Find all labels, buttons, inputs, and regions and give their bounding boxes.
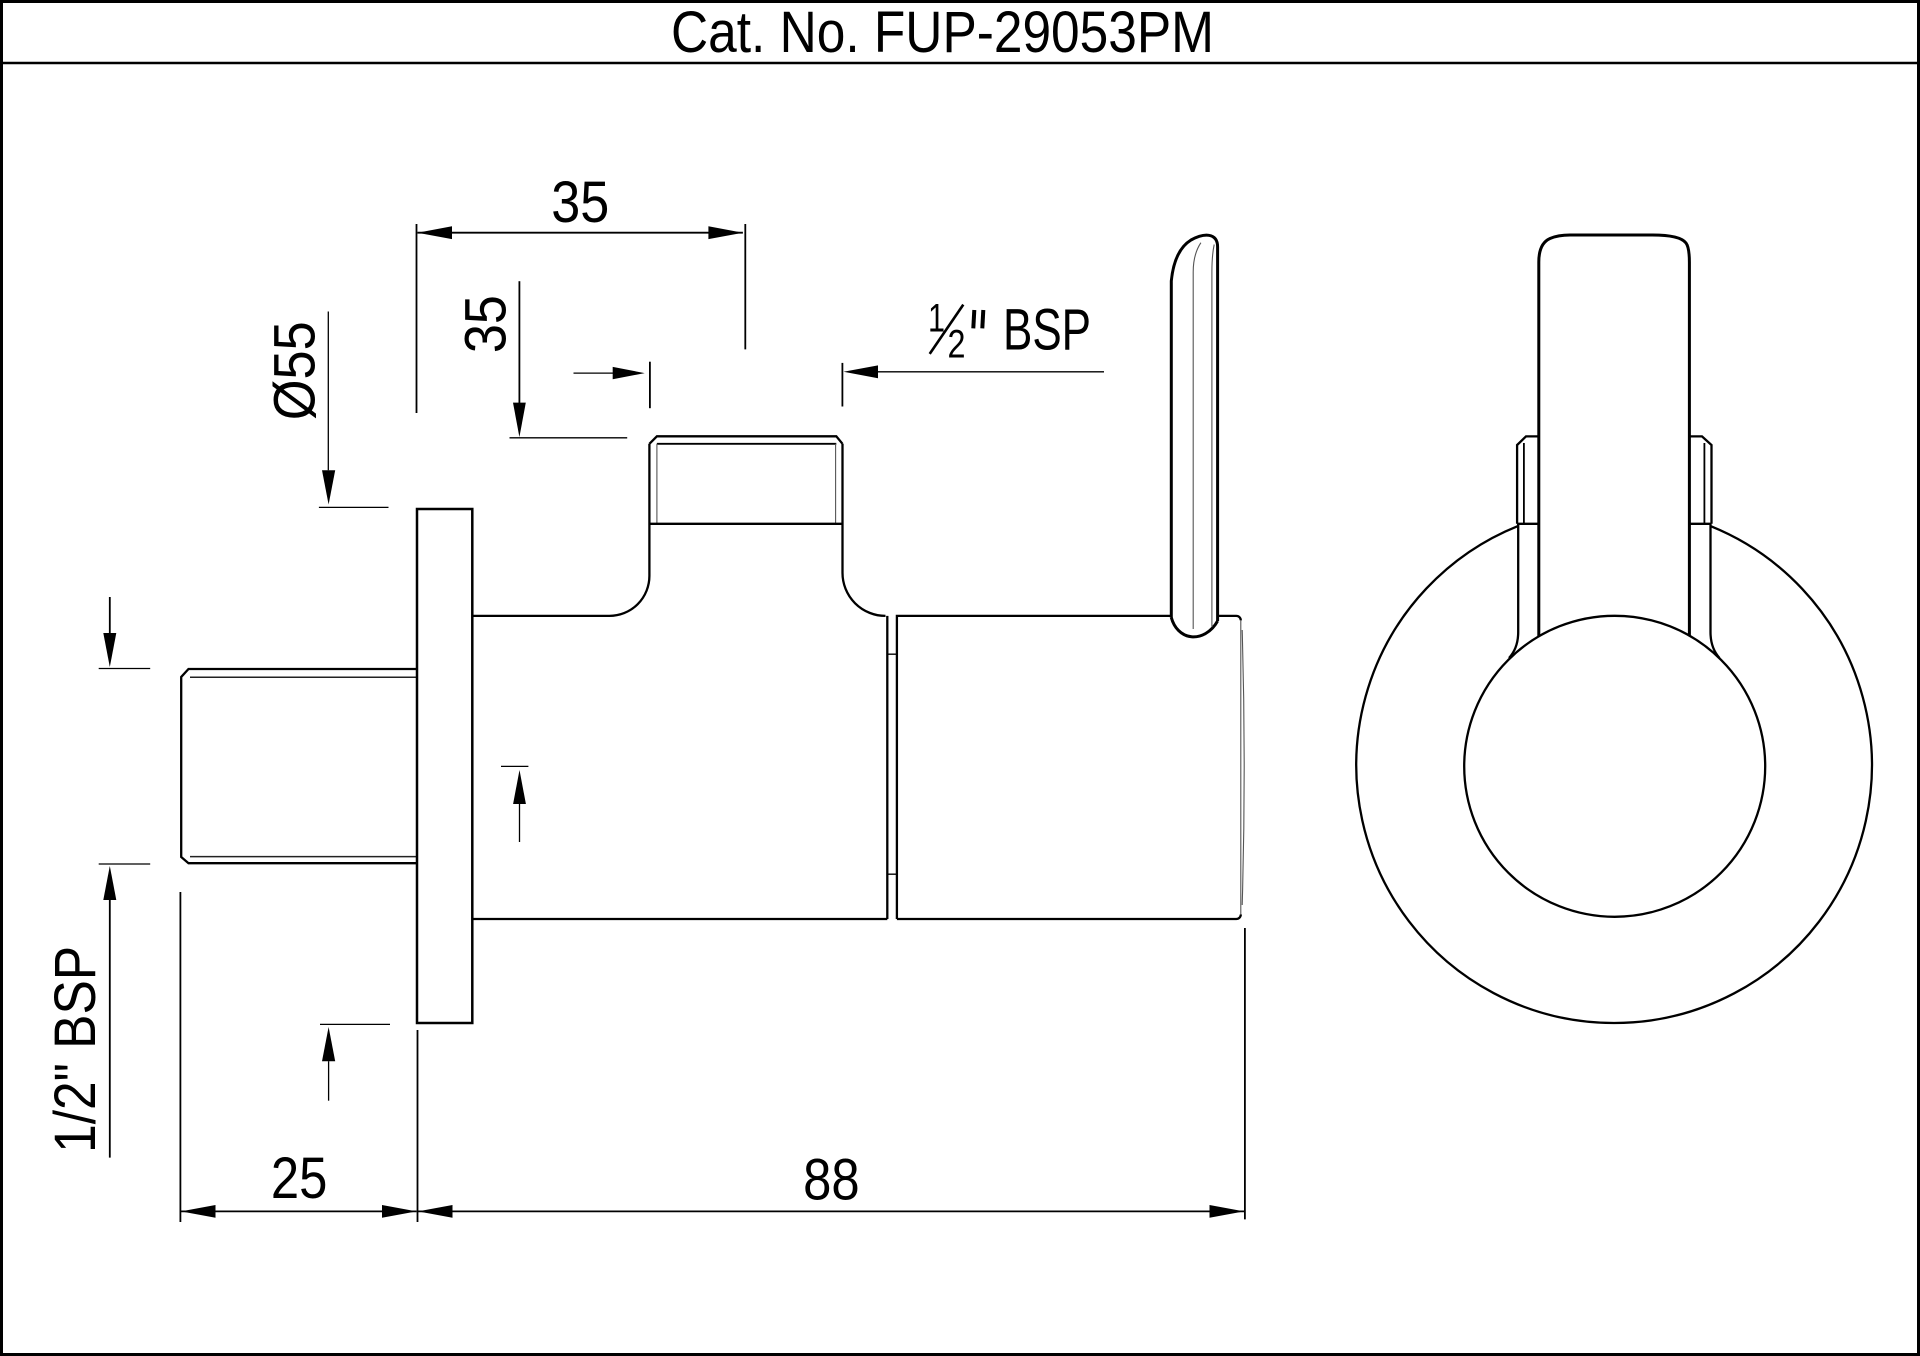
svg-text:88: 88 xyxy=(803,1148,860,1213)
svg-text:Cat. No. FUP-29053PM: Cat. No. FUP-29053PM xyxy=(671,0,1214,65)
svg-text:35: 35 xyxy=(551,170,609,235)
svg-text:25: 25 xyxy=(271,1146,328,1211)
svg-text:35: 35 xyxy=(454,295,519,353)
svg-text:Ø55: Ø55 xyxy=(263,321,328,420)
svg-text:1/2" BSP: 1/2" BSP xyxy=(43,946,108,1153)
svg-text:2: 2 xyxy=(948,322,966,366)
svg-text:BSP: BSP xyxy=(1003,297,1091,362)
